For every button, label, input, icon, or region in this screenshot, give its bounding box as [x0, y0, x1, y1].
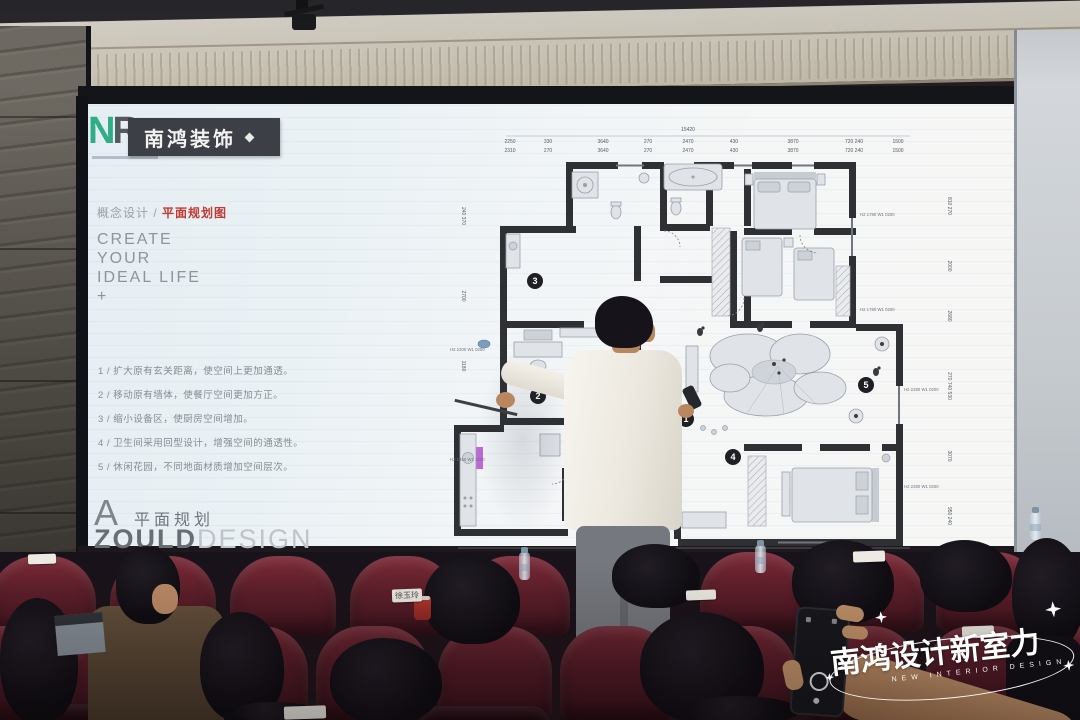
svg-text:330: 330 [544, 139, 553, 145]
camera-ui-icon [806, 617, 811, 622]
svg-text:3: 3 [532, 276, 537, 286]
svg-text:2250: 2250 [504, 139, 515, 145]
design-note: 5 / 休闲花园，不同地面材质增加空间层次。 [98, 456, 303, 480]
brand-secondary: DESIGN [197, 524, 313, 554]
sparkle-icon [875, 611, 888, 624]
seat-name-tag [28, 554, 56, 565]
seat-name-tag [853, 550, 885, 562]
seat-name-tag: 徐玉玲 [392, 588, 422, 602]
sparkle-icon [1044, 600, 1062, 618]
svg-text:720 240: 720 240 [845, 148, 863, 154]
svg-text:H2 1780 W1 0200: H2 1780 W1 0200 [860, 212, 895, 217]
plan-dims-top: 15420 2250 330 3640 270 2470 430 3870 72… [504, 127, 910, 154]
audience-head [330, 638, 442, 720]
tagline-line: YOUR [97, 249, 201, 268]
screen-bezel-left [76, 96, 88, 564]
svg-text:2680: 2680 [946, 310, 952, 321]
presenter-hand [496, 392, 515, 408]
logo-letter-n: N [88, 110, 112, 152]
plan-dims-right: 810 270 2000 2680 270 740 530 3070 950 2… [946, 197, 952, 525]
svg-text:3870: 3870 [787, 148, 798, 154]
company-banner: 南鸿装饰 [128, 118, 280, 156]
banner-diamond-icon [245, 132, 255, 142]
presenter-shirt [564, 350, 682, 530]
svg-text:240 370: 240 370 [460, 207, 466, 225]
svg-text:3870: 3870 [787, 139, 798, 145]
tagline-line: + [97, 287, 201, 306]
svg-text:430: 430 [730, 148, 739, 154]
audience-head [424, 556, 520, 644]
svg-text:2700: 2700 [460, 290, 466, 301]
audience-hand [152, 584, 178, 614]
svg-text:3070: 3070 [946, 450, 952, 461]
design-note: 2 / 移动原有墙体，使餐厅空间更加方正。 [98, 384, 303, 408]
wall-right [1014, 30, 1080, 590]
svg-text:430: 430 [730, 139, 739, 145]
svg-text:810 270: 810 270 [946, 197, 952, 215]
water-bottle [1030, 512, 1041, 540]
svg-text:2470: 2470 [682, 139, 693, 145]
svg-text:270: 270 [544, 148, 553, 154]
audience-head [683, 696, 799, 720]
company-name: 南鸿装饰 [144, 123, 236, 152]
laptop [54, 612, 105, 656]
brand-logotype: ZOULDDESIGN [94, 524, 313, 555]
svg-text:H2 1780 W1 0200: H2 1780 W1 0200 [860, 307, 895, 312]
plan-marker-4: 4 [725, 449, 741, 465]
svg-text:H2 2280 W1 0200: H2 2280 W1 0200 [904, 484, 939, 489]
lecture-hall-photo: NR 南鸿装饰 概念设计 / 平面规划图 CREATE YOUR IDEAL L… [0, 0, 1080, 720]
svg-text:1500: 1500 [892, 139, 903, 145]
plan-marker-3: 3 [527, 273, 543, 289]
svg-text:720 240: 720 240 [845, 139, 863, 145]
design-note: 3 / 缩小设备区，使厨房空间增加。 [98, 408, 303, 432]
svg-text:2470: 2470 [682, 148, 693, 154]
svg-text:270 740 530: 270 740 530 [946, 372, 952, 400]
design-note: 1 / 扩大原有玄关距离，使空间上更加通透。 [98, 360, 303, 384]
water-bottle [755, 545, 766, 573]
svg-text:5: 5 [863, 380, 868, 390]
svg-text:H2 2280 W1 0200: H2 2280 W1 0200 [904, 387, 939, 392]
screen-bezel-top [78, 86, 1014, 104]
kicker-red: 平面规划图 [162, 206, 227, 220]
design-notes: 1 / 扩大原有玄关距离，使空间上更加通透。 2 / 移动原有墙体，使餐厅空间更… [98, 360, 303, 480]
svg-text:270: 270 [644, 139, 653, 145]
svg-text:270: 270 [644, 148, 653, 154]
seat-back [420, 706, 550, 720]
presenter-head [595, 296, 653, 348]
ceiling-mount-icon [282, 0, 328, 36]
slide-tagline: CREATE YOUR IDEAL LIFE + [97, 230, 201, 306]
svg-text:4: 4 [730, 452, 735, 462]
presenter [490, 292, 720, 662]
presenter-hand-right [678, 404, 694, 418]
seat-name-tag [284, 705, 326, 719]
tagline-line: IDEAL LIFE [97, 268, 201, 287]
design-note: 4 / 卫生间采用回型设计，增强空间的通透性。 [98, 432, 303, 456]
logo-subtext [92, 156, 158, 159]
tagline-line: CREATE [97, 230, 201, 249]
camera-ui-dot [813, 698, 819, 704]
svg-text:3640: 3640 [597, 139, 608, 145]
section-kicker: 概念设计 / 平面规划图 [97, 204, 227, 221]
seat-name-tag [686, 589, 716, 600]
svg-text:2000: 2000 [946, 260, 952, 271]
svg-text:1500: 1500 [892, 148, 903, 154]
svg-text:2310: 2310 [504, 148, 515, 154]
svg-text:950 240: 950 240 [946, 507, 952, 525]
svg-text:3640: 3640 [597, 148, 608, 154]
svg-text:15420: 15420 [681, 127, 695, 133]
plan-marker-5: 5 [858, 377, 874, 393]
kicker-gray: 概念设计 / [97, 206, 158, 220]
